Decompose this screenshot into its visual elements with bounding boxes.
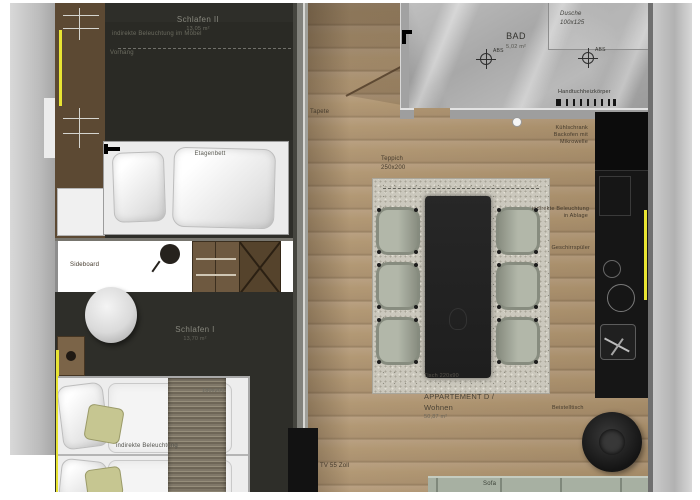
bathroom-bottom-wall [400,108,414,119]
accent-cushion [83,403,125,445]
bathroom-floor: BAD 5,02 m² Dusche 100x125 ABS ABS Handt… [408,3,648,108]
chest-handle [196,258,236,260]
frame-right [692,0,700,500]
apartment-label-line1: APPARTEMENT D / [424,392,494,401]
wardrobe-rail-icon [79,108,80,148]
drawer-chest [192,241,240,294]
label-teppich: Teppich [381,156,403,164]
label-tv: TV 55 Zoll [320,463,349,471]
apartment-label-line2: Wohnen [424,403,453,412]
table-engraving [449,308,467,330]
dining-chair [496,262,540,310]
label-dusche: Dusche [560,11,582,19]
pillow [112,151,166,223]
label-line: Mikrowelle [540,139,588,146]
frame-bottom [0,492,700,500]
label-bett-groesse: 180x200 [202,388,225,395]
label-kuehlschrank: Kühlschrank Backofen mit Mikrowelle [540,125,588,146]
fridge [595,112,648,171]
hand-mirror-icon [160,244,180,264]
label-line: Backofen mit [540,132,588,139]
stool [57,336,85,376]
bed-runner [168,378,226,494]
dining-chair [496,317,540,365]
label-sofa: Sofa [483,481,496,489]
round-lounge-chair [582,412,642,472]
frame-left [0,0,10,500]
room-area-schlafen1: 13,70 m² [160,336,230,343]
label-tapete: Tapete [310,109,329,117]
cooktop-burner-icon [607,284,635,312]
wardrobe-white-cabinet [57,188,105,236]
dining-chair [376,317,420,365]
led-strip [59,30,62,106]
label-line: Kühlschrank [540,125,588,132]
room-label-bad: BAD [496,31,536,42]
label-etagenbett: Etagenbett [180,151,240,159]
frame-bottom-left [0,455,55,500]
door-frame-mark [402,34,406,44]
label-abs: ABS [493,48,504,54]
bathroom-left-wall [400,3,409,108]
terrace-strip-left [10,3,58,455]
door-stop-dot [512,117,522,127]
label-sideboard: Sideboard [70,262,99,270]
label-tisch: Tisch 220x90 [424,373,459,380]
x-front-cabinet [239,241,281,294]
frame-top [0,0,700,3]
wardrobe-shelf-line [63,15,99,16]
label-teppich-size: 250x200 [381,165,405,173]
terrace-door-opening [44,98,55,158]
curtain-track-line [118,48,291,49]
floor-plan: Schlafen II 13,05 m² indirekte Beleuchtu… [0,0,700,500]
label-vorhang: Vorhang [110,50,134,58]
wardrobe-rail-icon [79,8,80,40]
bedroom2-wardrobe [55,3,105,239]
bedroom2-cabinet-block [105,22,293,140]
room-label-schlafen2: Schlafen II [168,15,228,25]
label-line: in Ablage [532,213,588,220]
room-label-schlafen1: Schlafen I [160,325,230,335]
wardrobe-shelf-line [63,133,99,134]
chair-center [599,429,625,455]
label-handtuchheizkoerper: Handtuchheizkörper [558,89,611,96]
terrace-strip-right [653,3,692,492]
chest-handle [196,274,236,276]
accent-cushion [84,466,124,494]
label-line: indirekte Beleuchtung [532,206,588,213]
chest-divider [215,242,216,293]
towel-radiator-icon [556,99,616,106]
center-wall [293,3,308,492]
label-abs: ABS [595,47,606,53]
floor-drain-icon [480,53,492,65]
oven-outline [599,176,631,216]
wardrobe-shelf-line [63,28,99,29]
wall-lamp-icon [104,144,108,154]
dining-chair [376,262,420,310]
dining-chair [376,207,420,255]
pillow [172,147,276,230]
pouf [85,287,137,343]
label-beleuchtung-moebel: indirekte Beleuchtung im Möbel [112,31,202,39]
label-ablage: indirekte Beleuchtung in Ablage [532,206,588,220]
label-dusche-size: 100x125 [560,20,584,28]
cooktop-burner-icon [603,260,621,278]
wardrobe-shelf-line [63,118,99,119]
stool-knob [66,351,76,361]
label-beleuchtung-bett: indirekte Beleuchtung [116,443,178,451]
apartment-area: 50,87 m² [424,414,447,421]
floor-drain-icon [582,52,594,64]
label-beistelltisch: Beistelltisch [552,405,584,412]
label-geschirrspueler: Geschirrspüler [546,245,590,252]
led-strip [644,210,647,300]
tv-panel [288,428,318,492]
dining-table [425,196,491,378]
kitchen-unit [595,112,648,398]
